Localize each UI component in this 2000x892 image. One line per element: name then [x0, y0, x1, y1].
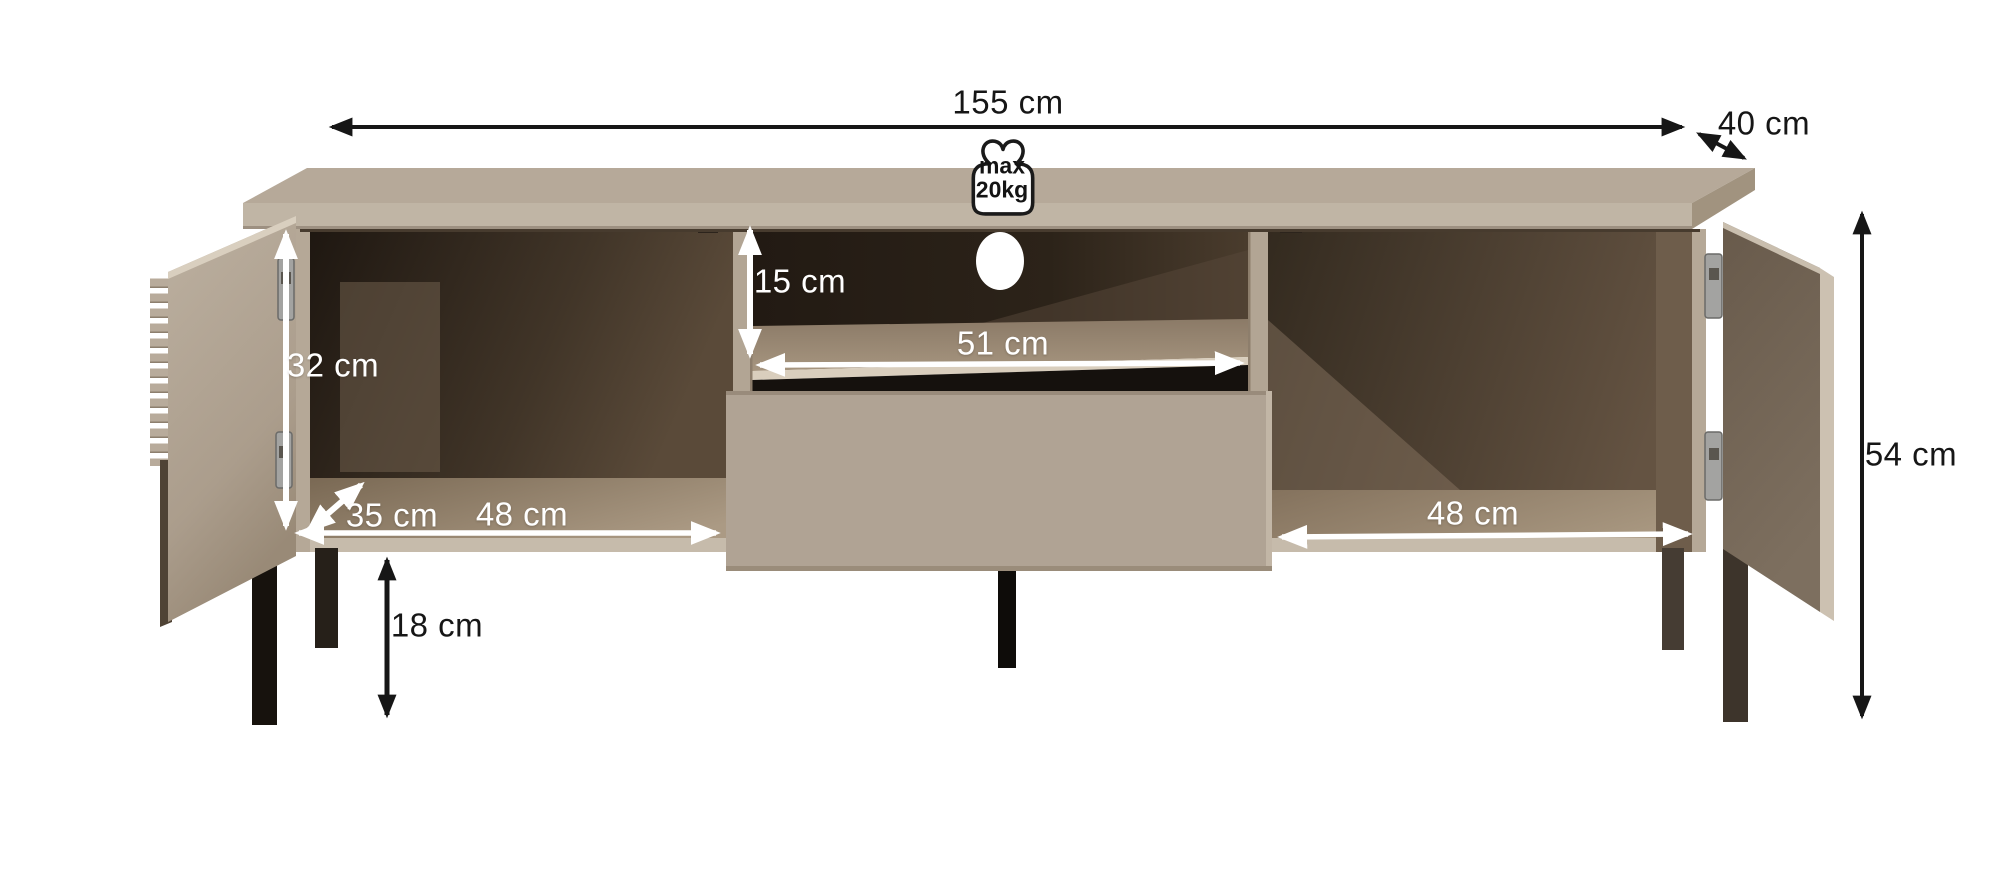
open-shelf-width-label: 51 cm: [957, 327, 1049, 360]
drawer-front-top-shade: [726, 391, 1272, 395]
right-side-panel-inner: [1656, 229, 1692, 552]
front-right-leg: [1723, 548, 1748, 722]
shelf-width-arrow: [760, 363, 1240, 365]
hinge-icon: [1705, 432, 1722, 500]
max-load-line2: 20kg: [976, 177, 1028, 204]
hinge-detail: [1709, 268, 1719, 280]
right-side-panel-edge: [1692, 229, 1706, 552]
door-compartment-height-label: 32 cm: [287, 349, 379, 382]
right-door-hinges: [1705, 254, 1722, 500]
top-underside-seam: [300, 229, 1700, 232]
left-door-inner-face: [168, 216, 296, 622]
hinge-icon: [1705, 254, 1722, 318]
hinge-detail: [1709, 448, 1719, 460]
leg-height-label: 18 cm: [391, 609, 483, 642]
back-left-leg: [315, 548, 338, 648]
top-front-lip: [243, 226, 1692, 229]
total-width-label: 155 cm: [952, 86, 1063, 119]
compartment-depth-label: 35 cm: [346, 499, 438, 532]
open-shelf-height-label: 15 cm: [754, 265, 846, 298]
right-door-inner-face: [1723, 222, 1820, 612]
back-right-leg: [1662, 548, 1684, 650]
left-door-open: [150, 216, 296, 627]
left-door-fluted-edge: [150, 276, 170, 466]
right-door-edge: [1820, 268, 1834, 621]
dimension-diagram: max 20kg 155 cm 40 cm 54 cm 18 cm 32 cm …: [0, 0, 2000, 892]
left-side-panel-edge: [296, 229, 310, 552]
total-depth-label: 40 cm: [1718, 107, 1810, 140]
right-width-arrow: [1282, 534, 1688, 537]
right-compartment-width-label: 48 cm: [1427, 497, 1519, 530]
drawer-front-side-highlight: [1266, 391, 1272, 571]
cable-hole: [976, 232, 1024, 290]
drawer-front: [726, 391, 1272, 571]
left-compartment-width-label: 48 cm: [476, 498, 568, 531]
drawer-front-bottom-edge: [726, 566, 1272, 571]
middle-leg: [998, 560, 1016, 668]
open-drawer: [726, 391, 1272, 571]
total-height-label: 54 cm: [1865, 438, 1957, 471]
max-load-line1: max: [979, 153, 1025, 180]
